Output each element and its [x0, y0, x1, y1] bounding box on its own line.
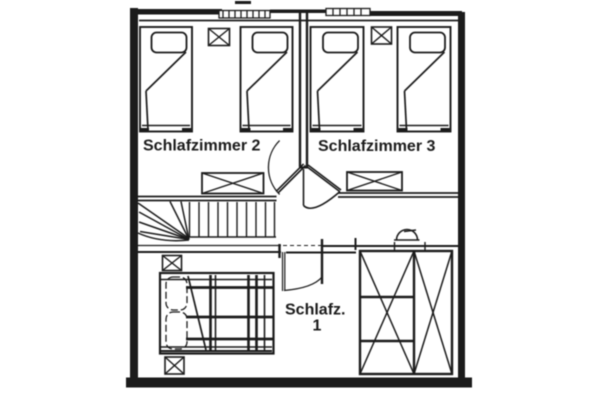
svg-text:Schlafzimmer 2: Schlafzimmer 2	[143, 138, 260, 155]
svg-text:Schlafzimmer 3: Schlafzimmer 3	[318, 138, 435, 155]
svg-text:1: 1	[313, 318, 322, 335]
svg-text:Schlafz.: Schlafz.	[285, 302, 345, 319]
